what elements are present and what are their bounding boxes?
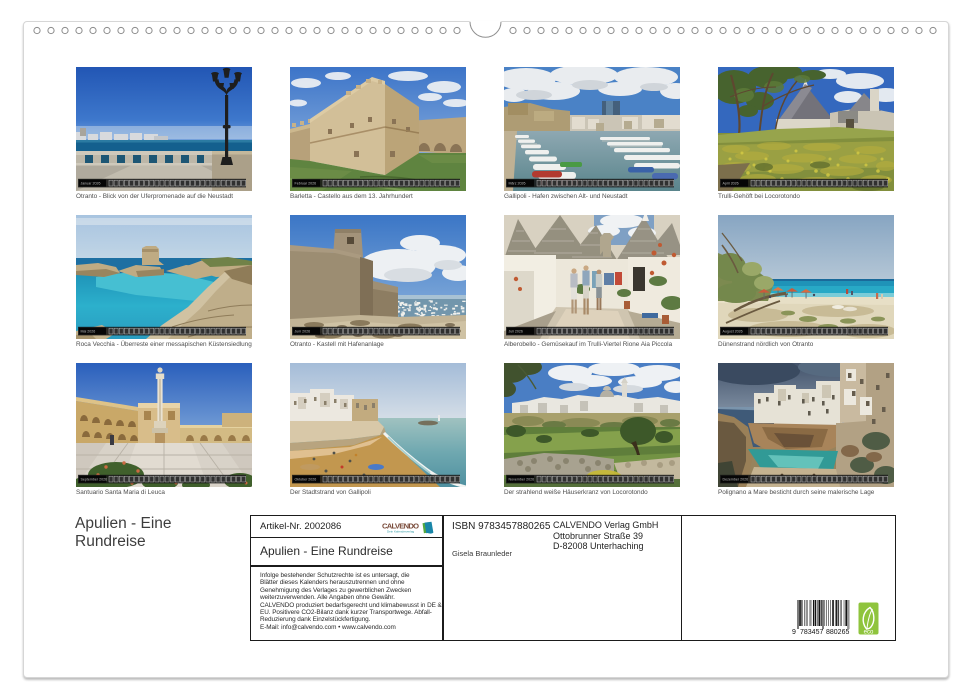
svg-text:September 2026: September 2026 (81, 477, 108, 481)
svg-text:Juli 2026: Juli 2026 (509, 330, 523, 334)
svg-text:April 2026: April 2026 (723, 182, 739, 186)
svg-text:Juni 2026: Juni 2026 (295, 330, 311, 334)
svg-text:Februar 2026: Februar 2026 (295, 182, 317, 186)
svg-text:August 2026: August 2026 (723, 330, 743, 334)
svg-text:eco: eco (864, 630, 874, 636)
svg-text:Mai 2026: Mai 2026 (81, 330, 96, 334)
svg-text:Dein Kalenderverlag: Dein Kalenderverlag (387, 530, 415, 534)
svg-text:Dezember 2026: Dezember 2026 (723, 477, 749, 481)
svg-text:9: 9 (792, 629, 796, 636)
svg-text:Januar 2026: Januar 2026 (81, 182, 101, 186)
svg-text:März 2026: März 2026 (509, 182, 526, 186)
svg-text:November 2026: November 2026 (509, 477, 535, 481)
svg-text:783457: 783457 (800, 629, 823, 636)
svg-text:Oktober 2026: Oktober 2026 (295, 477, 317, 481)
svg-text:880265: 880265 (826, 629, 849, 636)
